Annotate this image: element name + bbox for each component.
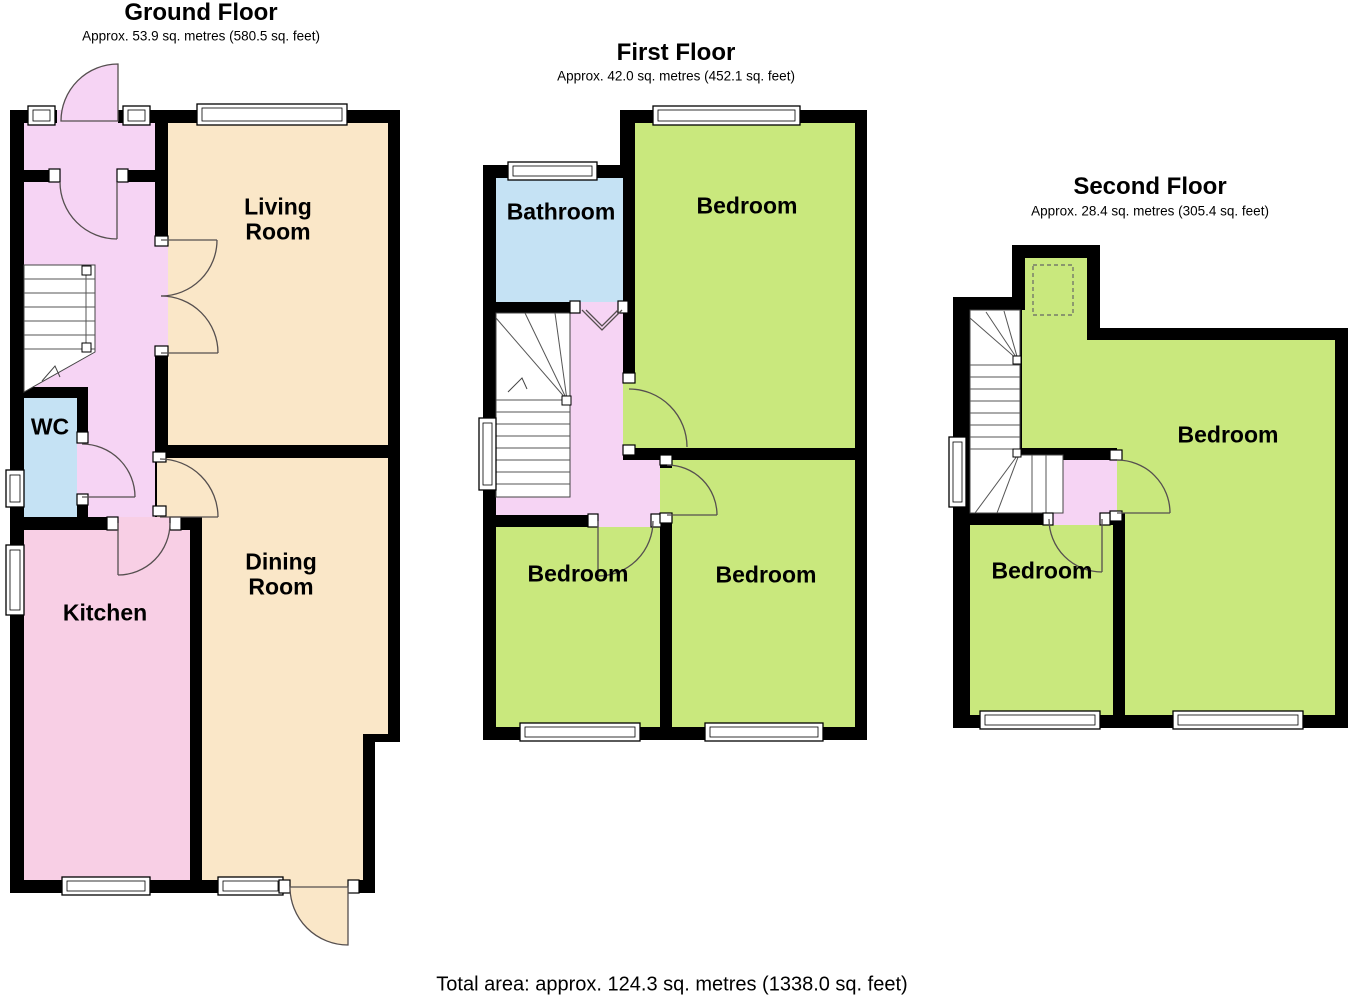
ground-floor-title: Ground Floor — [124, 0, 277, 27]
bedroom-f2-main-door-opening — [1117, 460, 1125, 513]
stairs-icon — [496, 313, 571, 497]
room-living — [168, 123, 388, 445]
label-bathroom: Bathroom — [507, 200, 616, 225]
bedroom-right-door-opening — [660, 468, 672, 515]
wc-door-opening — [77, 443, 88, 497]
label-wc: WC — [31, 415, 69, 440]
bedroom-f2-left-door-opening — [1053, 513, 1102, 525]
label-kitchen: Kitchen — [63, 601, 147, 626]
floorplan-page: Ground Floor Approx. 53.9 sq. metres (58… — [0, 0, 1353, 1001]
label-dining-room: Dining Room — [245, 549, 317, 598]
first-floor-title: First Floor — [617, 39, 736, 67]
ground-floor-plan — [0, 55, 425, 961]
bathroom-door-opening — [580, 302, 620, 313]
room-bedroom-f2-left — [970, 525, 1113, 715]
label-bedroom-f1-left: Bedroom — [528, 562, 629, 587]
bedroom-main-door-opening — [623, 383, 635, 447]
label-bedroom-f1-right: Bedroom — [716, 563, 817, 588]
label-living-room: Living Room — [244, 194, 312, 243]
label-bedroom-f2-left: Bedroom — [992, 559, 1093, 584]
room-bedroom-main — [635, 123, 855, 448]
label-bedroom-f2-main: Bedroom — [1178, 423, 1279, 448]
room-bathroom — [496, 178, 623, 302]
room-bedroom-right — [672, 460, 855, 727]
first-floor-subtitle: Approx. 42.0 sq. metres (452.1 sq. feet) — [557, 69, 795, 84]
kitchen-door-opening — [118, 517, 170, 530]
room-bedroom-left — [496, 527, 660, 727]
first-floor-plan — [478, 100, 873, 750]
ground-floor-subtitle: Approx. 53.9 sq. metres (580.5 sq. feet) — [82, 29, 320, 44]
second-floor-plan — [948, 240, 1353, 740]
landing-corridor — [623, 460, 660, 515]
front-door-arc — [61, 64, 118, 121]
bedroom-left-door-opening — [598, 515, 653, 527]
second-floor-title: Second Floor — [1073, 173, 1226, 201]
room-kitchen — [24, 530, 190, 880]
hall-door-opening — [60, 170, 117, 182]
back-door-arc — [290, 887, 348, 945]
total-area-text: Total area: approx. 124.3 sq. metres (13… — [436, 974, 907, 997]
second-floor-subtitle: Approx. 28.4 sq. metres (305.4 sq. feet) — [1031, 204, 1269, 219]
label-bedroom-f1-main: Bedroom — [697, 194, 798, 219]
